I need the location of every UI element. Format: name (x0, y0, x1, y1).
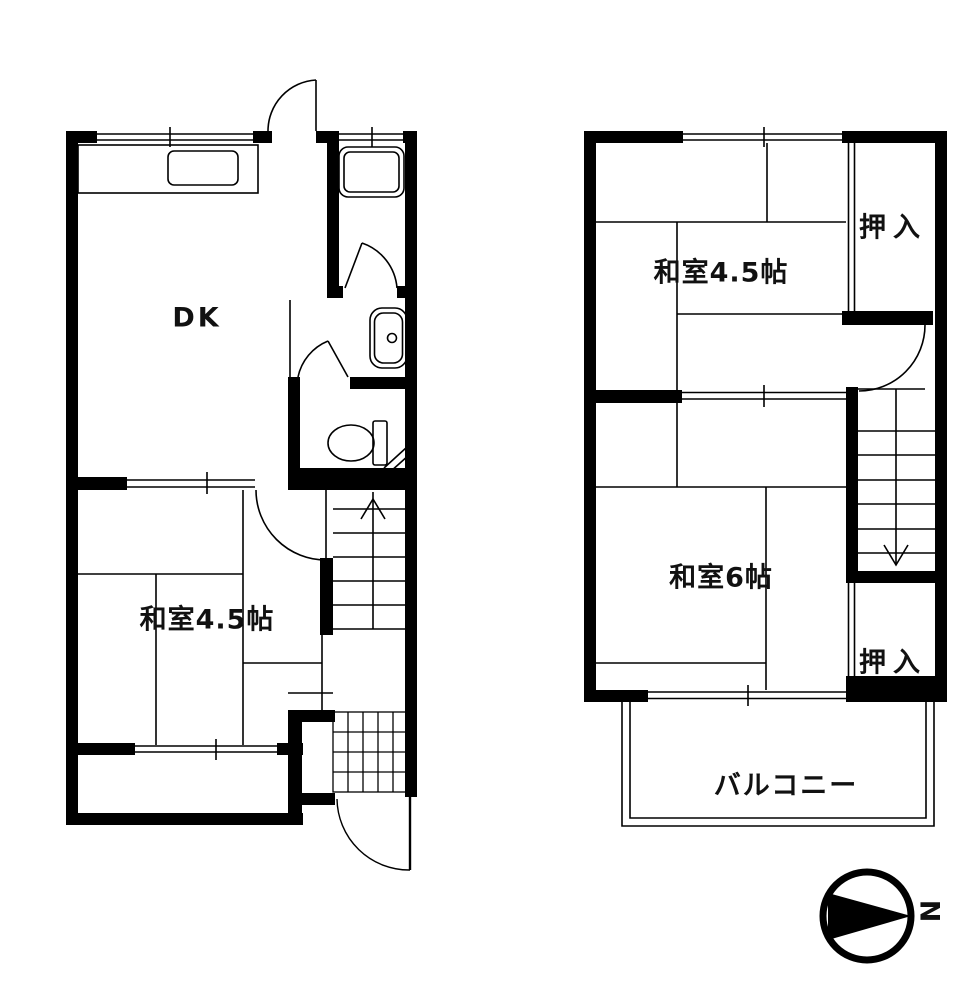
toilet-door-arc (298, 341, 328, 377)
bathroom-door-arc (362, 243, 397, 288)
compass-north-label: N (916, 900, 943, 923)
back-door-arc (268, 80, 316, 131)
second-floor-stairs (858, 389, 935, 565)
washbasin-icon (370, 308, 407, 368)
toilet-icon (328, 421, 409, 472)
bathroom-door-leaf (345, 243, 362, 288)
closet-label-top: 押入 (859, 215, 927, 242)
floor-plan-drawing (0, 0, 979, 1000)
entrance-door-arc (337, 799, 410, 870)
genkan-tile-grid (333, 712, 407, 792)
second-floor-doors (859, 325, 925, 391)
washitsu-door-arc (256, 490, 326, 560)
first-floor-stairs (333, 492, 405, 629)
first-floor-windows (97, 127, 403, 760)
bathtub-icon (339, 147, 404, 197)
closet-label-bottom: 押入 (859, 650, 927, 677)
kitchen-counter-icon (78, 145, 258, 193)
toilet-door-leaf (328, 341, 348, 377)
first-floor-walls (66, 131, 417, 825)
first-floor-partition-lines (78, 300, 333, 745)
room-label-dk: DK (172, 305, 221, 332)
floor-plan-canvas: DK 和室4.5帖 和室4.5帖 押入 和室6帖 押入 バルコニー N (0, 0, 979, 1000)
room-label-washitsu45-2f: 和室4.5帖 (654, 260, 789, 287)
first-floor-plan (66, 80, 417, 870)
room-label-washitsu6-2f: 和室6帖 (669, 565, 773, 592)
compass-icon (823, 872, 911, 960)
room-label-washitsu45-1f: 和室4.5帖 (140, 607, 275, 634)
balcony-label: バルコニー (714, 773, 858, 800)
landing-door-arc (859, 325, 925, 391)
second-floor-windows (648, 127, 855, 706)
balcony-outline (622, 702, 934, 826)
